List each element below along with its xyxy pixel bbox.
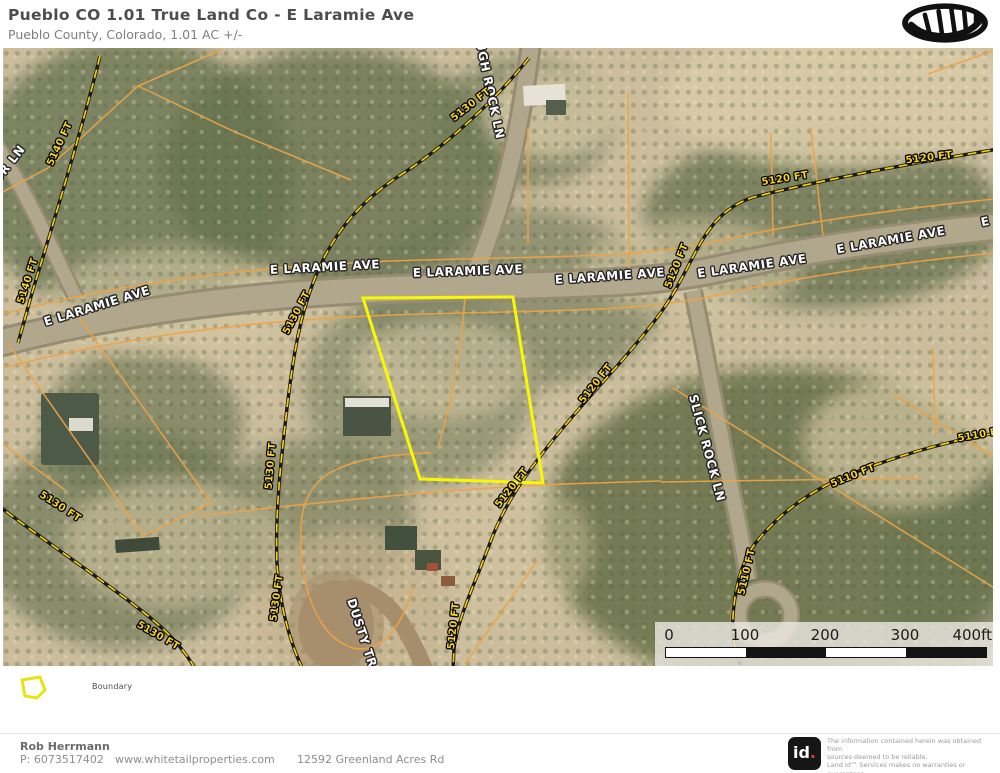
contour-elevation-label: 5110 FT bbox=[736, 548, 757, 596]
page-title: Pueblo CO 1.01 True Land Co - E Laramie … bbox=[8, 6, 414, 24]
contour-elevation-label: 5120 FT bbox=[493, 466, 531, 510]
land-id-logo-dot: . bbox=[810, 743, 816, 762]
boundary-legend-icon bbox=[18, 675, 48, 701]
footer-divider bbox=[0, 733, 1000, 734]
scale-segment bbox=[746, 648, 826, 657]
property-map-export: Pueblo CO 1.01 True Land Co - E Laramie … bbox=[0, 0, 1000, 773]
agent-website-link[interactable]: www.whitetailproperties.com bbox=[115, 753, 275, 766]
agent-name: Rob Herrmann bbox=[20, 740, 110, 753]
agent-address: 12592 Greenland Acres Rd bbox=[297, 753, 444, 766]
contour-elevation-label: 5120 FT bbox=[761, 170, 809, 188]
contour-elevation-label: 5110 FT bbox=[957, 425, 993, 444]
contour-elevation-label: 5130 FT bbox=[37, 490, 82, 525]
road-label: E LARAMIE AVE bbox=[835, 224, 946, 257]
scale-tick: 300 bbox=[891, 626, 920, 644]
road-label: E LARAMIE AVE bbox=[554, 265, 665, 287]
scale-segment bbox=[826, 648, 906, 657]
agent-phone: P: 6073517402 bbox=[20, 753, 104, 766]
road-label: E LARAMIE AVE bbox=[696, 251, 807, 280]
road-label: E LARAMIE AVE bbox=[980, 193, 993, 230]
contour-elevation-label: 5130 FT bbox=[263, 442, 278, 490]
contour-elevation-label: 5120 FT bbox=[446, 602, 462, 650]
contour-elevation-label: 5140 FT bbox=[45, 120, 75, 167]
disclaimer-line: sources deemed to be reliable. bbox=[827, 753, 997, 761]
disclaimer-line: The information contained herein was obt… bbox=[827, 737, 997, 753]
scale-bar-segments bbox=[665, 647, 987, 658]
aerial-map[interactable]: E LARAMIE AVEE LARAMIE AVEE LARAMIE AVEE… bbox=[3, 48, 993, 666]
disclaimer-text: The information contained herein was obt… bbox=[827, 737, 997, 773]
road-label: SLICK ROCK LN bbox=[686, 393, 728, 503]
contour-elevation-label: 5130 FT bbox=[135, 619, 181, 652]
scale-tick: 0 bbox=[664, 626, 674, 644]
road-label: UR LN bbox=[3, 142, 28, 185]
whitetail-properties-logo bbox=[898, 2, 992, 44]
contour-elevation-label: 5140 FT bbox=[15, 257, 40, 305]
scale-bar: 0 100 200 300 400ft bbox=[655, 622, 993, 666]
scale-end-label: 400ft bbox=[952, 626, 992, 644]
contour-elevation-label: 5120 FT bbox=[577, 362, 615, 406]
scale-tick: 200 bbox=[811, 626, 840, 644]
road-label: E LARAMIE AVE bbox=[270, 257, 381, 277]
scale-segment bbox=[666, 648, 746, 657]
disclaimer-line: Land id™ Services makes no warranties or… bbox=[827, 761, 997, 773]
contour-elevation-label: 5130 FT bbox=[268, 574, 285, 622]
road-label: E LARAMIE AVE bbox=[413, 262, 524, 280]
contour-elevation-label: 5110 FT bbox=[829, 462, 877, 490]
land-id-logo: id. bbox=[788, 737, 821, 770]
legend-boundary-label: Boundary bbox=[92, 682, 132, 691]
map-labels-layer: E LARAMIE AVEE LARAMIE AVEE LARAMIE AVEE… bbox=[3, 48, 993, 666]
scale-segment bbox=[906, 648, 986, 657]
land-id-logo-text: id bbox=[793, 743, 810, 762]
road-label: DUSTY TR bbox=[344, 597, 379, 666]
scale-tick: 100 bbox=[731, 626, 760, 644]
contour-elevation-label: 5130 FT bbox=[281, 290, 313, 337]
contour-elevation-label: 5120 FT bbox=[905, 150, 953, 167]
page-subtitle: Pueblo County, Colorado, 1.01 AC +/- bbox=[8, 27, 242, 42]
contour-elevation-label: 5120 FT bbox=[663, 242, 691, 290]
road-label: E LARAMIE AVE bbox=[42, 283, 152, 329]
